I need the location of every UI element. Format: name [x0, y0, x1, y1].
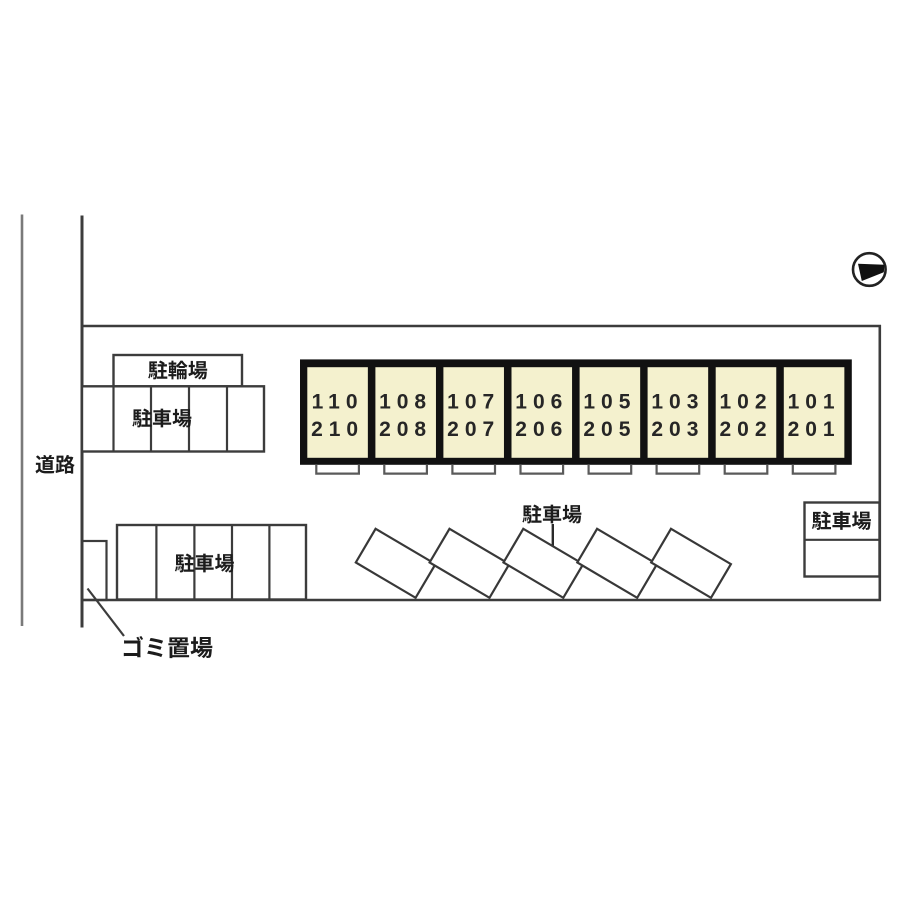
svg-text:210: 210: [311, 418, 364, 441]
svg-text:102: 102: [719, 391, 772, 414]
svg-text:201: 201: [788, 418, 841, 441]
svg-text:208: 208: [379, 418, 432, 441]
svg-text:205: 205: [583, 418, 636, 441]
svg-text:107: 107: [447, 391, 500, 414]
svg-text:110: 110: [312, 391, 364, 414]
svg-text:206: 206: [515, 418, 568, 441]
svg-text:203: 203: [651, 418, 704, 441]
svg-text:105: 105: [583, 391, 636, 414]
svg-text:202: 202: [719, 418, 772, 441]
svg-text:103: 103: [651, 391, 704, 414]
svg-text:101: 101: [788, 391, 841, 414]
svg-text:106: 106: [515, 391, 568, 414]
svg-text:108: 108: [379, 391, 432, 414]
svg-text:207: 207: [447, 418, 500, 441]
